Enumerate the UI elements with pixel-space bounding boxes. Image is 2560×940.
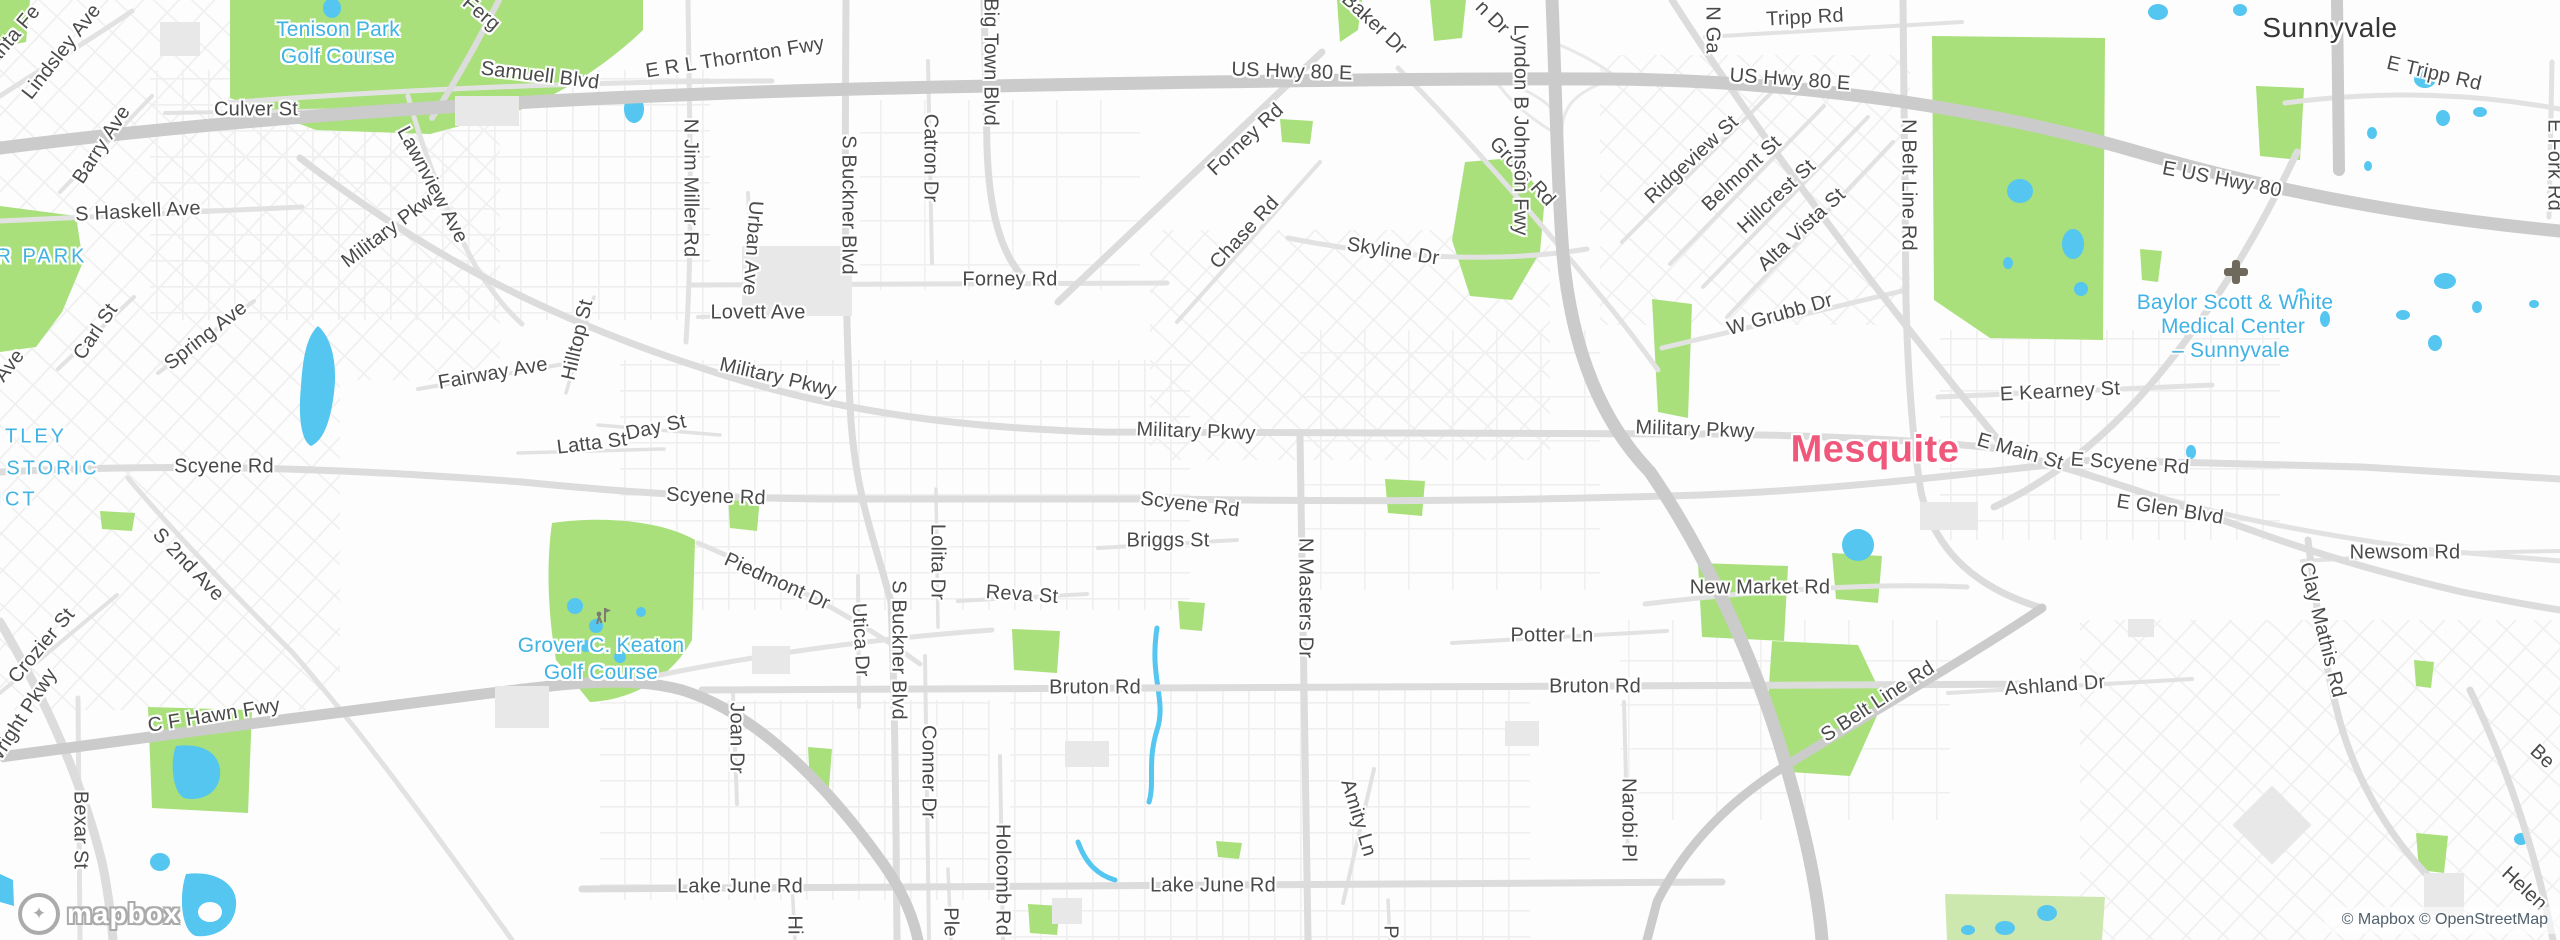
mapbox-logo[interactable]: ✦ mapbox: [18, 893, 180, 935]
attribution-osm-link[interactable]: © OpenStreetMap: [2419, 911, 2548, 928]
map-viewport[interactable]: Santa FeLindsley AveFergTenison ParkGolf…: [0, 0, 2560, 940]
mapbox-logo-text: mapbox: [67, 898, 180, 930]
mapbox-logo-icon: ✦: [18, 893, 60, 935]
golfer-icon: [594, 606, 612, 626]
hospital-icon: [2224, 260, 2248, 284]
map-canvas: [0, 0, 2560, 940]
attribution-bar: © Mapbox© OpenStreetMap: [2324, 907, 2560, 934]
attribution-mapbox-link[interactable]: © Mapbox: [2342, 911, 2415, 928]
